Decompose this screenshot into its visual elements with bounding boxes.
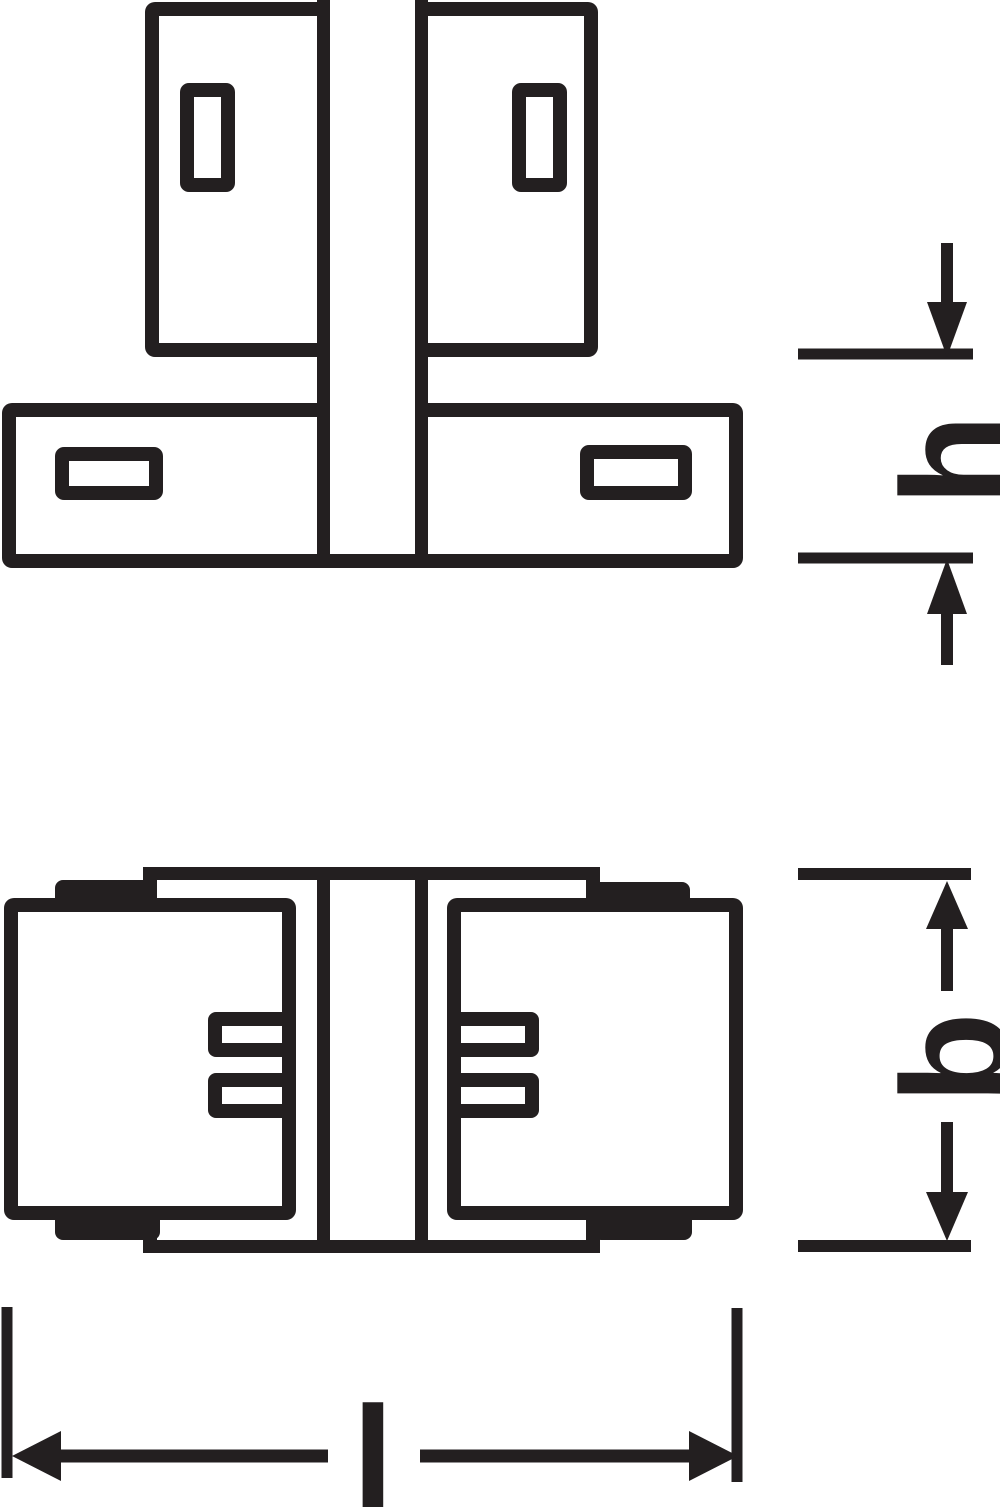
dimension-l-label: l	[352, 1375, 394, 1507]
dimension-h-label: h	[870, 414, 1000, 506]
l-arrow-right-head	[689, 1431, 738, 1481]
dimension-l: l	[7, 1307, 738, 1507]
technical-dimension-drawing: h b l	[0, 0, 1000, 1507]
h-arrow-up-head	[927, 559, 967, 614]
dimension-b: b	[798, 874, 1000, 1246]
b-arrow-down-head	[926, 1192, 968, 1241]
dimension-b-label: b	[870, 1012, 1000, 1104]
dimension-annotations: h b l	[0, 0, 1000, 1507]
dimension-h: h	[798, 243, 1000, 665]
b-arrow-up-head	[926, 881, 968, 929]
